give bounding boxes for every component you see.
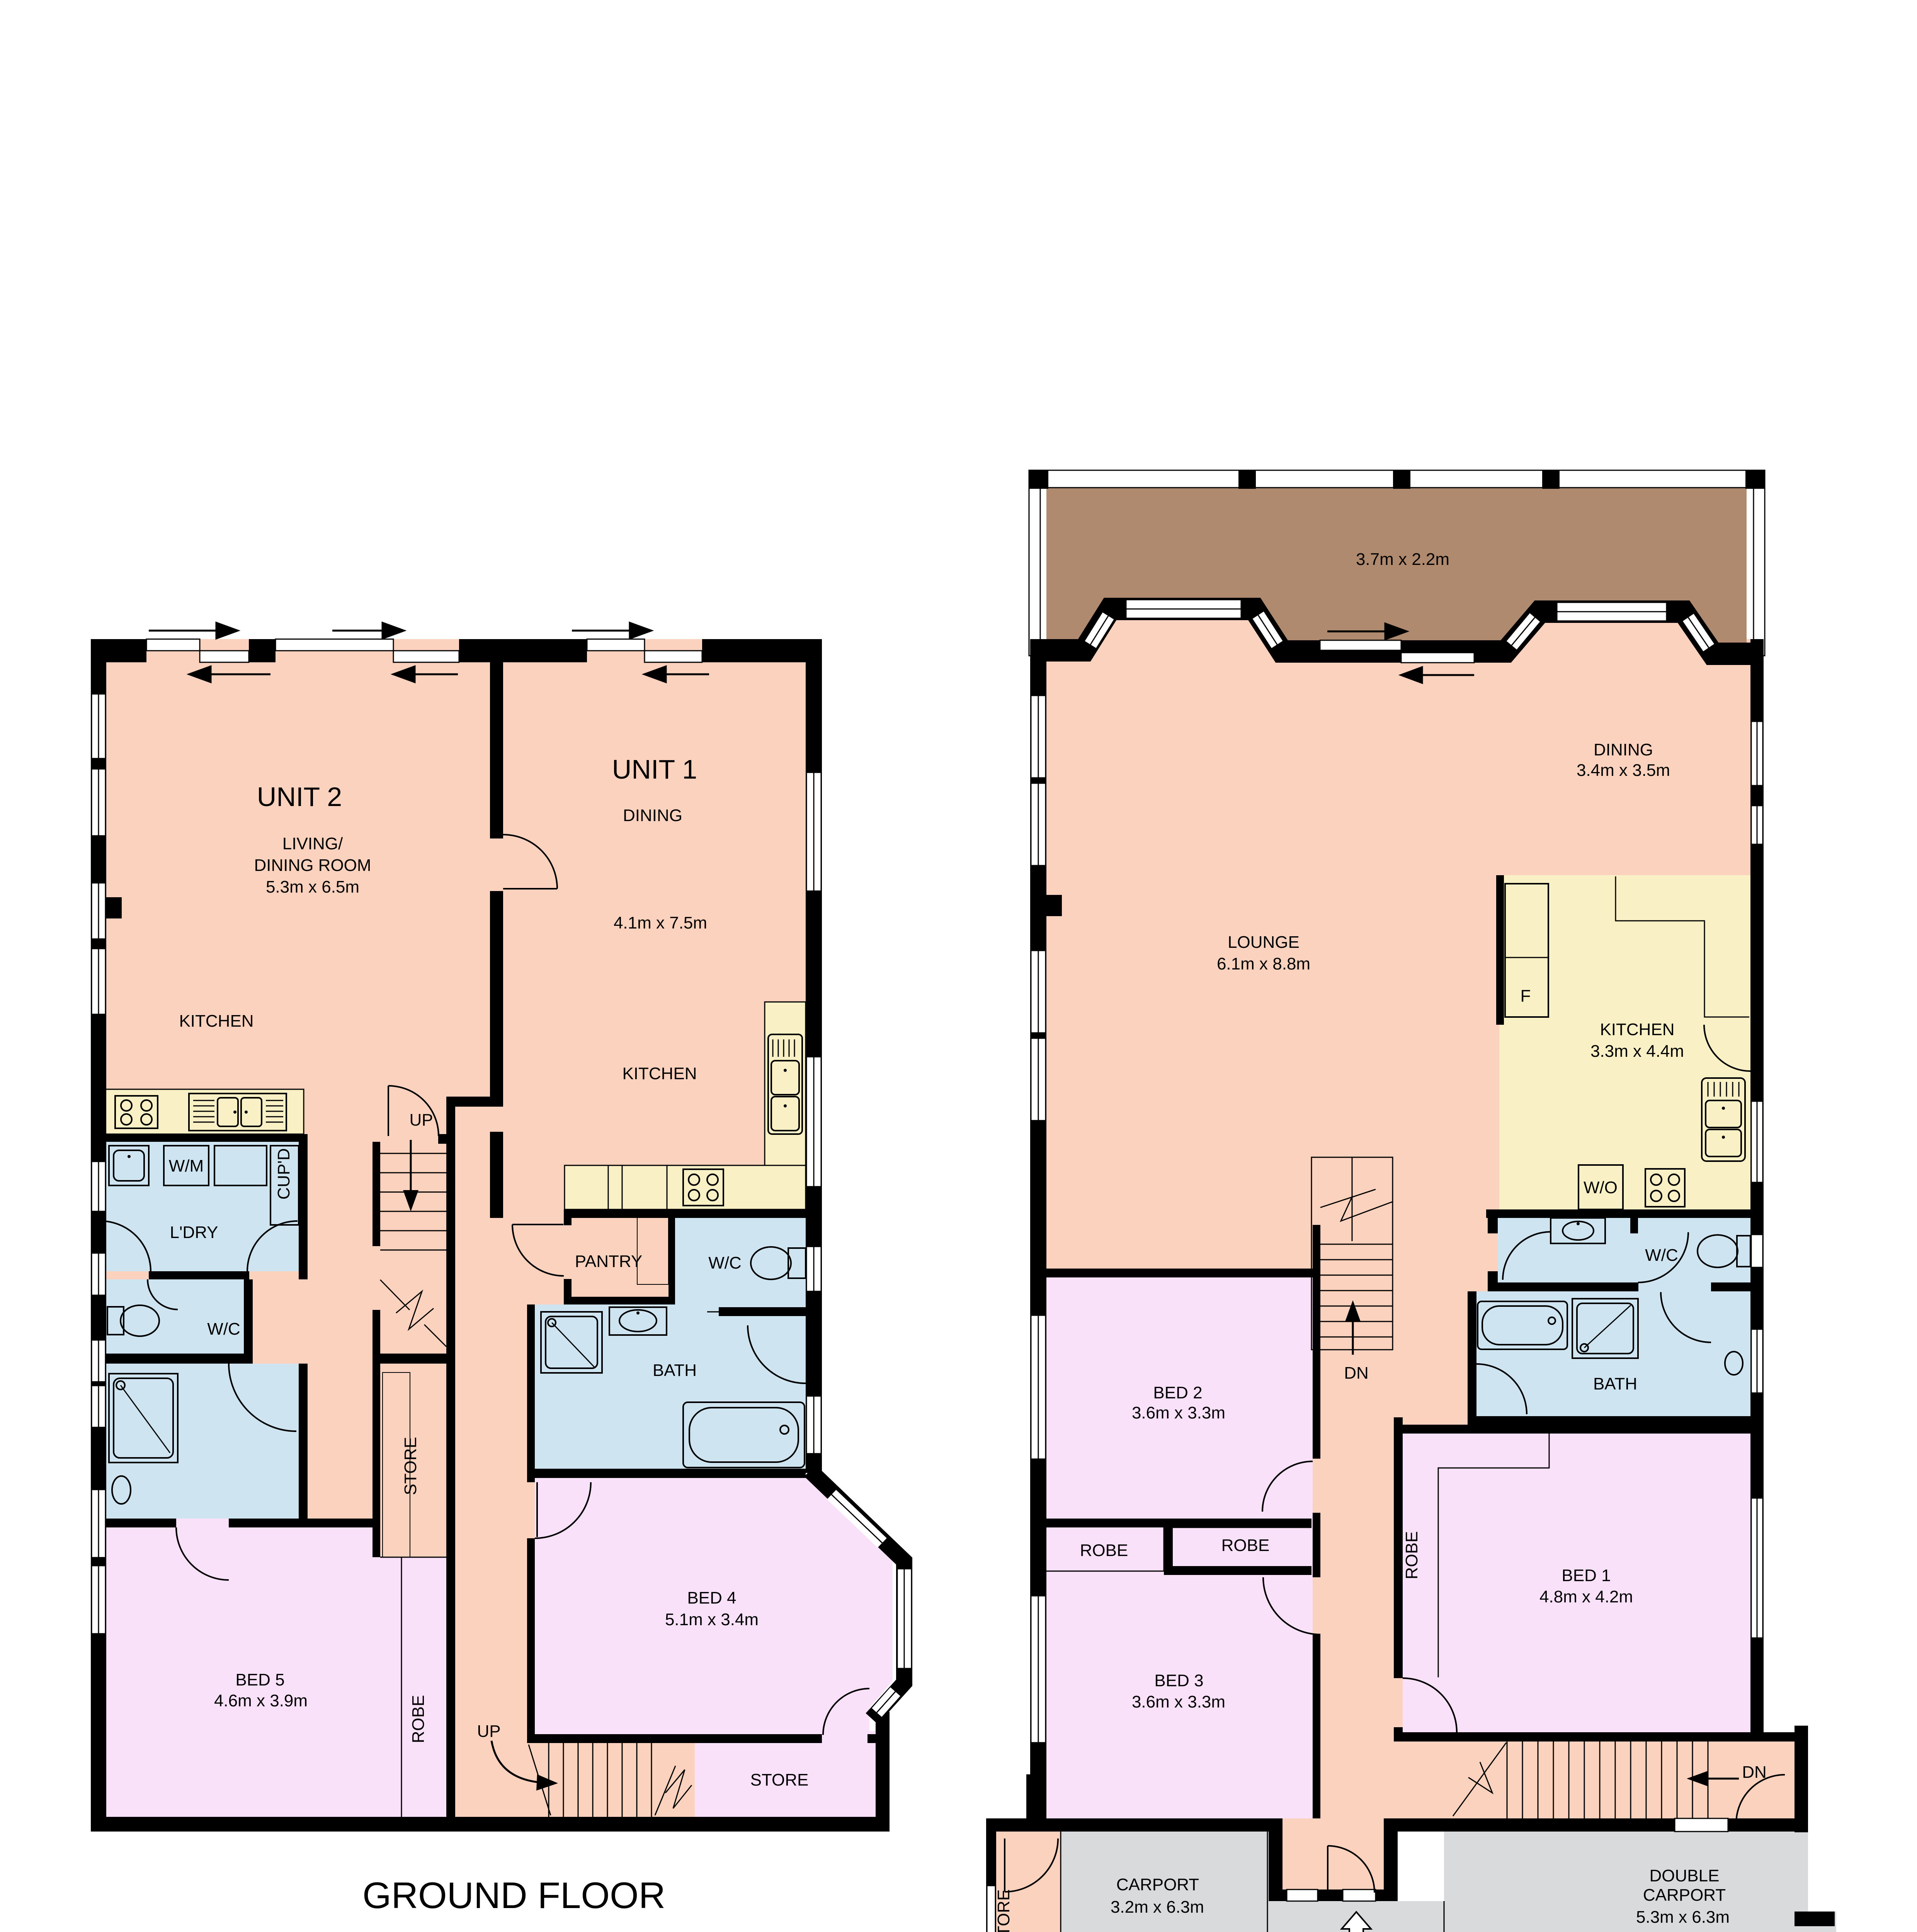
svg-text:DINING: DINING — [623, 806, 682, 825]
svg-text:BATH: BATH — [653, 1361, 697, 1380]
svg-text:LIVING/: LIVING/ — [282, 834, 343, 853]
svg-text:UNIT 1: UNIT 1 — [612, 754, 697, 784]
svg-text:ROBE: ROBE — [1402, 1531, 1421, 1580]
svg-text:W/C: W/C — [1645, 1246, 1678, 1265]
svg-text:DOUBLE: DOUBLE — [1650, 1866, 1720, 1885]
svg-text:3.4m x 3.5m: 3.4m x 3.5m — [1577, 761, 1670, 780]
svg-text:BED 1: BED 1 — [1561, 1566, 1611, 1585]
svg-text:DINING ROOM: DINING ROOM — [254, 856, 371, 875]
svg-text:5.3m x 6.5m: 5.3m x 6.5m — [266, 878, 359, 896]
svg-text:UP: UP — [409, 1111, 433, 1129]
svg-text:DN: DN — [1344, 1364, 1369, 1383]
svg-text:BED 4: BED 4 — [687, 1588, 736, 1607]
svg-text:3.6m x 3.3m: 3.6m x 3.3m — [1132, 1692, 1225, 1711]
svg-text:GROUND FLOOR: GROUND FLOOR — [362, 1875, 665, 1916]
svg-text:DN: DN — [1742, 1763, 1767, 1782]
svg-text:KITCHEN: KITCHEN — [1600, 1020, 1674, 1039]
svg-text:UP: UP — [477, 1722, 500, 1741]
svg-text:CARPORT: CARPORT — [1116, 1875, 1199, 1894]
svg-text:3.7m x 2.2m: 3.7m x 2.2m — [1356, 550, 1449, 569]
svg-text:KITCHEN: KITCHEN — [179, 1012, 253, 1031]
svg-text:4.6m x 3.9m: 4.6m x 3.9m — [214, 1691, 308, 1710]
svg-text:UNIT 2: UNIT 2 — [257, 782, 342, 812]
svg-text:W/C: W/C — [207, 1320, 240, 1338]
svg-text:BED 2: BED 2 — [1153, 1383, 1202, 1402]
svg-text:W/M: W/M — [169, 1156, 204, 1175]
svg-text:4.1m x 7.5m: 4.1m x 7.5m — [614, 913, 707, 932]
svg-text:STORE: STORE — [994, 1889, 1013, 1932]
svg-text:6.1m x 8.8m: 6.1m x 8.8m — [1217, 954, 1310, 973]
svg-text:BED 5: BED 5 — [235, 1670, 284, 1689]
svg-text:PANTRY: PANTRY — [575, 1252, 642, 1271]
svg-text:ROBE: ROBE — [409, 1695, 428, 1743]
svg-text:BATH: BATH — [1593, 1374, 1637, 1393]
svg-text:5.3m x 6.3m: 5.3m x 6.3m — [1636, 1908, 1730, 1927]
svg-text:L'DRY: L'DRY — [170, 1223, 218, 1242]
svg-text:4.8m x 4.2m: 4.8m x 4.2m — [1539, 1587, 1633, 1606]
svg-text:F: F — [1521, 986, 1531, 1005]
svg-text:W/C: W/C — [708, 1253, 742, 1272]
svg-text:BED 3: BED 3 — [1154, 1671, 1203, 1690]
svg-text:CARPORT: CARPORT — [1643, 1886, 1726, 1905]
svg-text:CUP'D: CUP'D — [274, 1148, 293, 1199]
svg-text:STORE: STORE — [750, 1770, 809, 1789]
svg-text:W/O: W/O — [1584, 1178, 1618, 1197]
svg-text:3.3m x 4.4m: 3.3m x 4.4m — [1590, 1042, 1684, 1061]
svg-text:STORE: STORE — [401, 1437, 420, 1495]
svg-text:ROBE: ROBE — [1221, 1536, 1270, 1555]
svg-text:3.2m x 6.3m: 3.2m x 6.3m — [1111, 1898, 1204, 1917]
svg-text:LOUNGE: LOUNGE — [1228, 933, 1300, 952]
svg-text:ROBE: ROBE — [1080, 1541, 1128, 1560]
svg-text:KITCHEN: KITCHEN — [622, 1064, 697, 1083]
svg-text:3.6m x 3.3m: 3.6m x 3.3m — [1132, 1403, 1225, 1422]
svg-text:5.1m x 3.4m: 5.1m x 3.4m — [665, 1610, 759, 1629]
svg-text:DINING: DINING — [1594, 740, 1653, 759]
